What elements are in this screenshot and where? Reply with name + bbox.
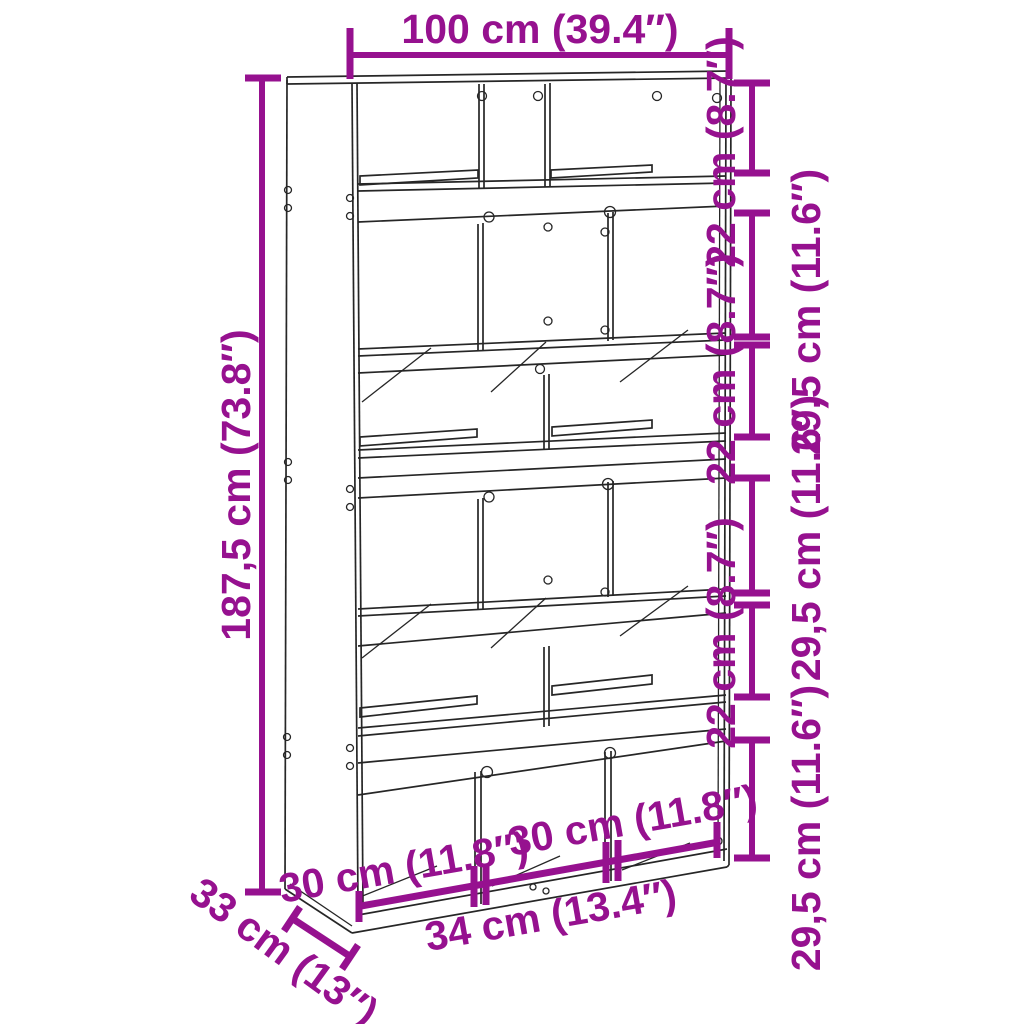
- bottom-section-middle-label: 34 cm (13.4″): [421, 870, 680, 959]
- bookcase-line-drawing: 100 cm (39.4″) 187,5 cm (73.8″) 22 cm (8…: [0, 0, 1024, 1024]
- bottom-section-right-label: 30 cm (11.8″): [504, 776, 760, 865]
- product-dimension-diagram: 100 cm (39.4″) 187,5 cm (73.8″) 22 cm (8…: [0, 0, 1024, 1024]
- height-dimension-label: 187,5 cm (73.8″): [213, 329, 259, 640]
- right-segment-label-5: 22 cm (8.7″): [698, 517, 744, 749]
- right-segment-label-3: 22 cm (8.7″): [698, 253, 744, 485]
- right-segment-label-6: 29,5 cm (11.6″): [783, 685, 829, 971]
- width-dimension-label: 100 cm (39.4″): [401, 6, 678, 52]
- right-segment-label-4: 29,5 cm (11.6″): [783, 395, 829, 681]
- right-segment-label-1: 22 cm (8.7″): [698, 36, 744, 268]
